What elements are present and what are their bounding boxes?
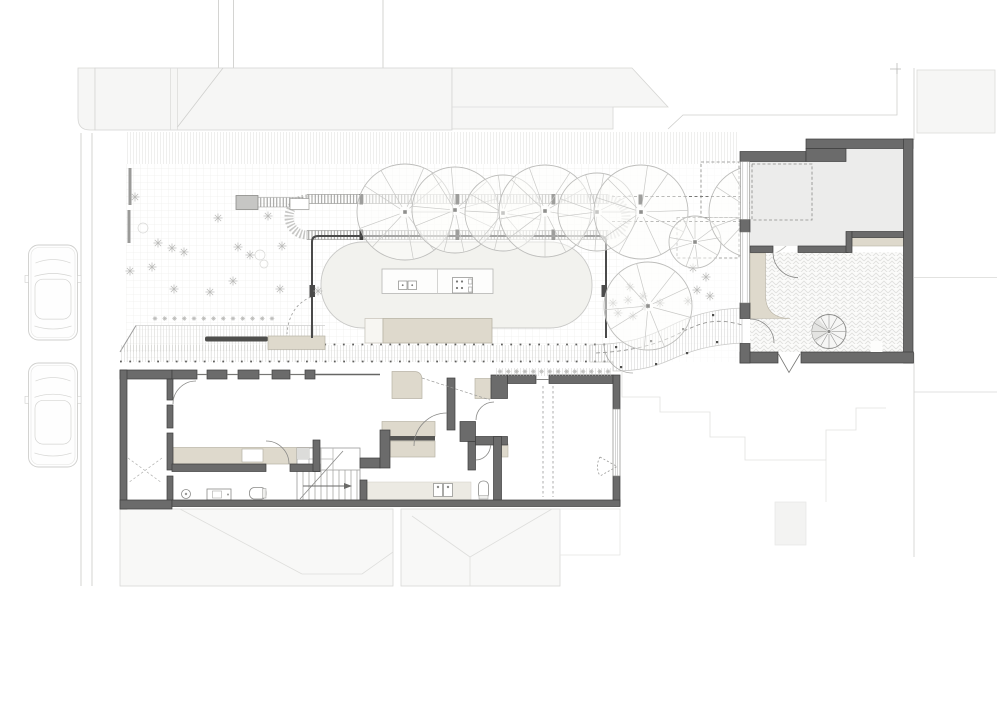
vanity-dot	[227, 494, 229, 496]
wall	[476, 437, 508, 446]
car-mirror	[25, 275, 29, 282]
paving-hatch-band	[126, 132, 738, 164]
appliance-dot	[437, 486, 439, 488]
deck-dot	[655, 363, 657, 365]
wall	[508, 375, 537, 384]
wall	[904, 139, 914, 363]
wall	[806, 149, 846, 162]
wall	[120, 370, 172, 379]
car-mirror	[25, 396, 29, 403]
wall	[613, 375, 620, 409]
wall	[238, 370, 259, 379]
kitchen-counter	[390, 441, 435, 457]
deck-dot	[620, 366, 622, 368]
tree-trunk	[543, 209, 547, 213]
tree-trunk	[639, 210, 643, 214]
tree-trunk	[693, 240, 697, 244]
wall	[491, 375, 508, 399]
sink-dot	[402, 284, 404, 286]
wall	[460, 422, 476, 442]
window	[741, 232, 750, 303]
wall	[852, 232, 904, 238]
garden-storage-box	[236, 196, 258, 210]
burner-dot	[461, 280, 463, 282]
burner-dot	[456, 280, 458, 282]
wall	[549, 375, 613, 384]
toilet-tank	[479, 496, 488, 500]
wall	[120, 500, 172, 509]
cabinet	[242, 449, 263, 462]
stair-landing	[297, 448, 309, 459]
window	[741, 162, 750, 220]
tree-trunk	[646, 304, 650, 308]
deck-dot	[686, 352, 688, 354]
garden-bench-beige	[383, 319, 492, 344]
neighbor-roof	[401, 509, 560, 586]
burner-dot	[461, 287, 463, 289]
dishwasher	[444, 484, 453, 497]
wall-recess	[871, 341, 883, 352]
wall	[846, 232, 852, 253]
wall	[167, 379, 173, 400]
wall	[740, 220, 750, 233]
deck-dot	[716, 341, 718, 343]
wall	[172, 370, 197, 379]
neighbor-building	[78, 68, 95, 130]
neighbor-shed	[775, 502, 806, 545]
dishwasher	[434, 484, 443, 497]
garden-bench-white	[365, 319, 383, 344]
car-mirror	[78, 275, 82, 282]
wall	[494, 437, 502, 501]
kitchen-run	[367, 482, 471, 500]
wall	[360, 458, 380, 468]
laundry-counter	[502, 444, 509, 457]
window	[613, 409, 620, 476]
car-mirror	[78, 396, 82, 403]
wall	[167, 405, 173, 428]
cabinet-beige	[475, 379, 491, 399]
wall	[740, 303, 750, 319]
deck-band	[120, 345, 613, 362]
wall	[380, 430, 390, 468]
site-plan-drawing	[0, 0, 1000, 707]
deck-hatch-strip	[495, 368, 613, 376]
wall	[468, 442, 476, 471]
appliance-dot	[447, 486, 449, 488]
entry-step	[268, 336, 325, 350]
wall	[801, 352, 914, 363]
wall	[798, 246, 848, 253]
entry-cabinet	[392, 372, 422, 399]
toilet-tank	[263, 489, 267, 499]
wall	[172, 500, 620, 507]
neighbor-building	[917, 70, 995, 133]
deck-dot	[712, 314, 714, 316]
front-fence	[129, 168, 132, 205]
wall	[272, 370, 290, 379]
wall	[207, 370, 227, 379]
floor-plan-page	[0, 0, 1000, 707]
wall	[740, 344, 750, 364]
wall	[313, 440, 320, 472]
burner-dot	[456, 287, 458, 289]
bench-wall	[205, 337, 268, 342]
neighbor-building	[95, 68, 452, 130]
front-fence	[128, 210, 131, 243]
wall	[447, 378, 455, 430]
spiral-stair-post	[827, 330, 830, 333]
car-body	[29, 363, 78, 467]
counter-beige	[852, 238, 904, 247]
wall	[120, 370, 127, 509]
wall	[806, 139, 913, 149]
deck-dot	[615, 346, 617, 348]
wall	[305, 370, 315, 379]
layer-neighbor-roofs	[120, 509, 620, 586]
wall	[740, 152, 806, 162]
wall	[390, 436, 435, 441]
layer-rear-studio	[740, 139, 914, 373]
wall	[750, 246, 773, 253]
cooktop	[453, 278, 473, 294]
garden-table	[290, 199, 309, 210]
sink-dot	[411, 284, 413, 286]
neighbor-roof	[120, 509, 393, 586]
tree-trunk	[403, 210, 407, 214]
tree-trunk	[453, 208, 457, 212]
wall	[172, 464, 266, 472]
basin-dot	[185, 493, 187, 495]
